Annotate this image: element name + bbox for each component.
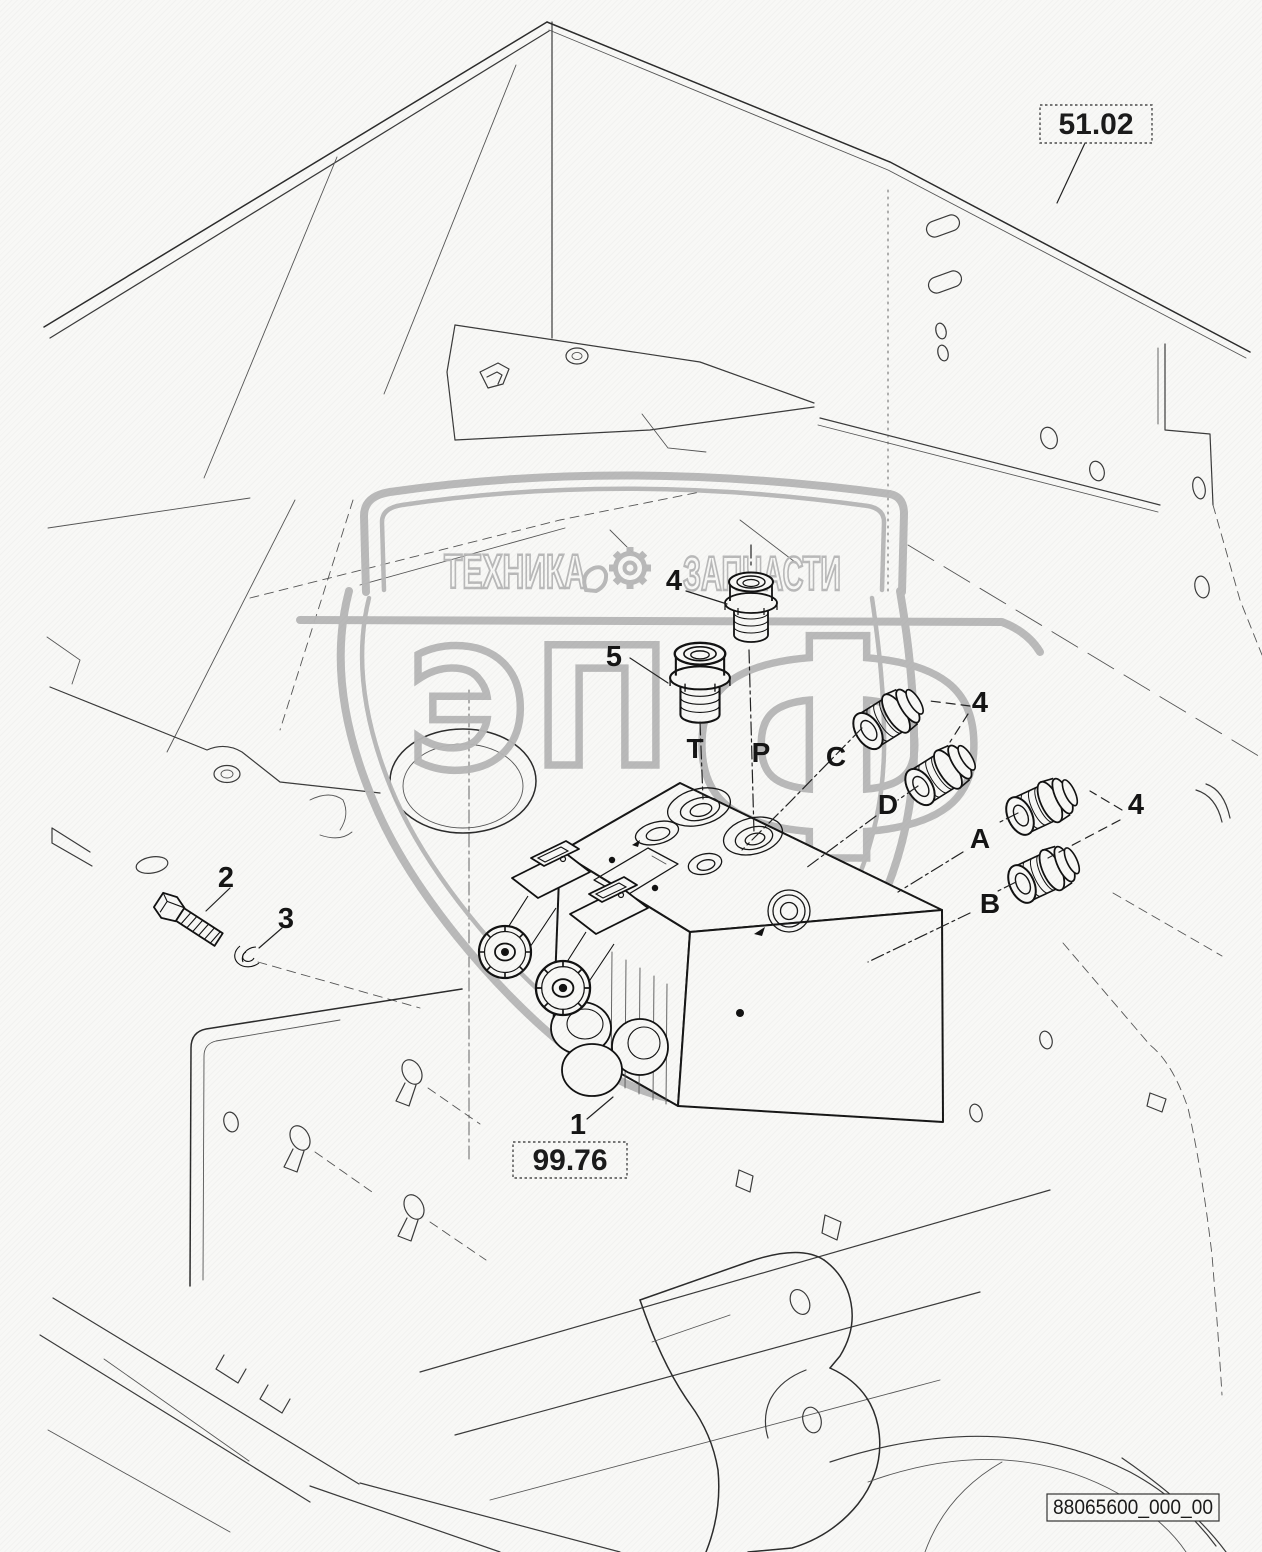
mount-plate [190, 989, 486, 1286]
callout-4-top: 4 [666, 565, 682, 597]
diagram-canvas: ТЕХНИКА ЗАПЧАСТИ Э П Ф [0, 0, 1262, 1552]
washer-item3 [235, 946, 259, 967]
drawing-number: 88065600_000_00 [1053, 1496, 1213, 1519]
callout-4-right: 4 [1128, 789, 1144, 821]
callout-4-mid: 4 [972, 687, 988, 719]
bolt-item2 [151, 889, 226, 950]
valve-block-right-face [678, 910, 943, 1122]
frame-right-wall-edge [547, 22, 1250, 352]
port-label-p: P [752, 737, 771, 768]
port-label-a: A [970, 823, 990, 854]
ref-box-51-02[interactable]: 51.02 [1040, 105, 1152, 143]
watermark-monogram-p: П [533, 612, 671, 804]
drawing-number-box: 88065600_000_00 [1047, 1494, 1219, 1521]
fitting-port-a [1000, 771, 1084, 841]
port-label-c: C [826, 741, 846, 772]
keyhole-slots [284, 1056, 428, 1241]
ref-box-99-76[interactable]: 99.76 [513, 1142, 627, 1178]
gear-icon [584, 547, 651, 591]
ref-box-51-02-label: 51.02 [1058, 108, 1133, 141]
port-label-d: D [878, 789, 898, 820]
watermark-monogram-e: Э [407, 615, 528, 807]
hook-bracket [640, 1252, 880, 1552]
callout-5: 5 [606, 641, 622, 673]
watermark-text-left: ТЕХНИКА [444, 546, 586, 599]
fitting-port-b [1002, 839, 1086, 909]
callout-2: 2 [218, 862, 234, 894]
port-label-b: B [980, 888, 1000, 919]
callout-1: 1 [570, 1109, 586, 1141]
ref-box-99-76-label: 99.76 [532, 1144, 607, 1177]
frame-roof-edge [44, 22, 547, 327]
parts-diagram-page: ТЕХНИКА ЗАПЧАСТИ Э П Ф [0, 0, 1262, 1552]
support-bracket [447, 325, 814, 452]
panel-slots [924, 213, 1211, 600]
port-label-t: T [686, 733, 703, 764]
callout-3: 3 [278, 903, 294, 935]
